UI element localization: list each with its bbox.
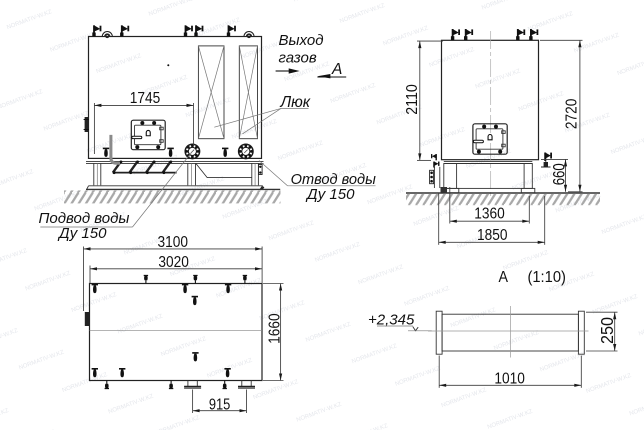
svg-text:2720: 2720: [563, 99, 580, 130]
svg-text:Ду 150: Ду 150: [305, 186, 355, 203]
svg-text:250: 250: [597, 317, 617, 344]
svg-text:3020: 3020: [158, 254, 189, 271]
svg-text:3100: 3100: [157, 234, 188, 251]
svg-text:Ду 150: Ду 150: [57, 225, 107, 242]
svg-text:1010: 1010: [494, 371, 525, 388]
svg-text:1660: 1660: [266, 313, 283, 344]
svg-text:Выход: Выход: [279, 32, 324, 49]
svg-text:1745: 1745: [130, 90, 161, 107]
svg-text:1360: 1360: [474, 206, 505, 223]
svg-text:2110: 2110: [404, 84, 421, 115]
svg-text:А: А: [499, 269, 509, 286]
svg-text:915: 915: [209, 397, 231, 414]
svg-text:газов: газов: [279, 50, 317, 67]
svg-text:660: 660: [551, 163, 569, 185]
svg-text:(1:10): (1:10): [527, 269, 566, 286]
svg-text:1850: 1850: [477, 227, 508, 244]
svg-text:А: А: [331, 61, 342, 78]
